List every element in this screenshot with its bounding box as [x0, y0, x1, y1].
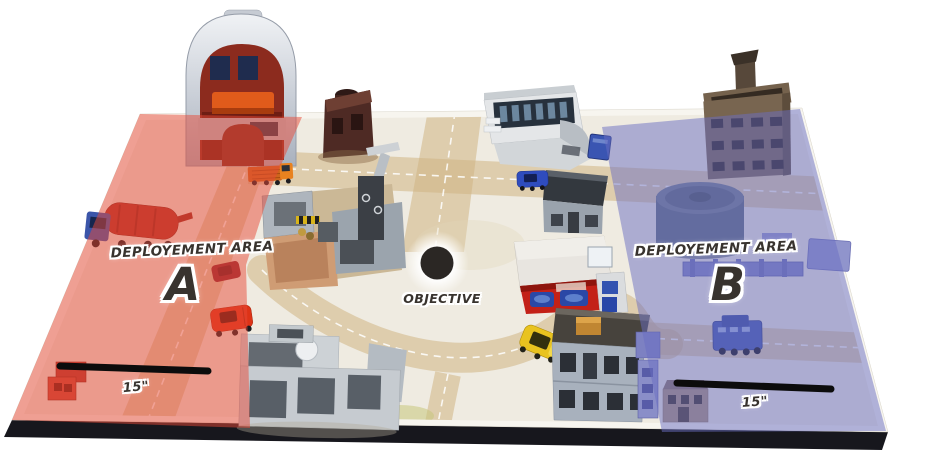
tower-opening: [351, 114, 363, 130]
two-story-house: [552, 308, 650, 422]
house-door: [583, 353, 597, 379]
garage-step: [486, 118, 500, 124]
ruin-back-inner: [248, 342, 303, 369]
compound-dark-block: [340, 240, 374, 264]
truck-cab-window: [282, 165, 290, 171]
garage-step: [484, 126, 501, 132]
shop-window-glint: [534, 295, 550, 303]
barrel: [298, 228, 306, 236]
red-storefront-shop: [514, 236, 628, 314]
objective-label: OBJECTIVE: [373, 292, 511, 305]
annex-window: [602, 281, 618, 294]
hazard-stripe-black: [299, 216, 319, 224]
building-window: [585, 215, 598, 227]
objective-dot: [421, 247, 454, 280]
dome-window: [210, 56, 230, 80]
zone-b-letter: B: [702, 261, 754, 308]
blue-car: [517, 170, 549, 191]
annex-door: [602, 297, 617, 312]
white-garage: [484, 85, 592, 170]
shop-skylight: [588, 247, 612, 267]
building-door: [568, 212, 579, 233]
orange-crate-lid: [576, 317, 601, 323]
ruin-roofbox-slot: [277, 329, 303, 339]
barrel: [306, 232, 314, 240]
wargame-table-photo: DEPLOYEMENT AREA A DEPLOYEMENT AREA B OB…: [0, 0, 936, 456]
zone-a-ruler-bar: [60, 366, 208, 371]
car-window: [524, 174, 537, 182]
dark-roof-building: [543, 170, 608, 234]
zone-a-letter: A: [157, 261, 209, 308]
tower-opening: [332, 118, 343, 134]
crate: [318, 222, 338, 242]
dome-window: [238, 56, 258, 80]
dome-orange-deck-shadow: [212, 108, 274, 114]
shop-window-glint: [565, 294, 583, 302]
building-window: [551, 214, 563, 226]
